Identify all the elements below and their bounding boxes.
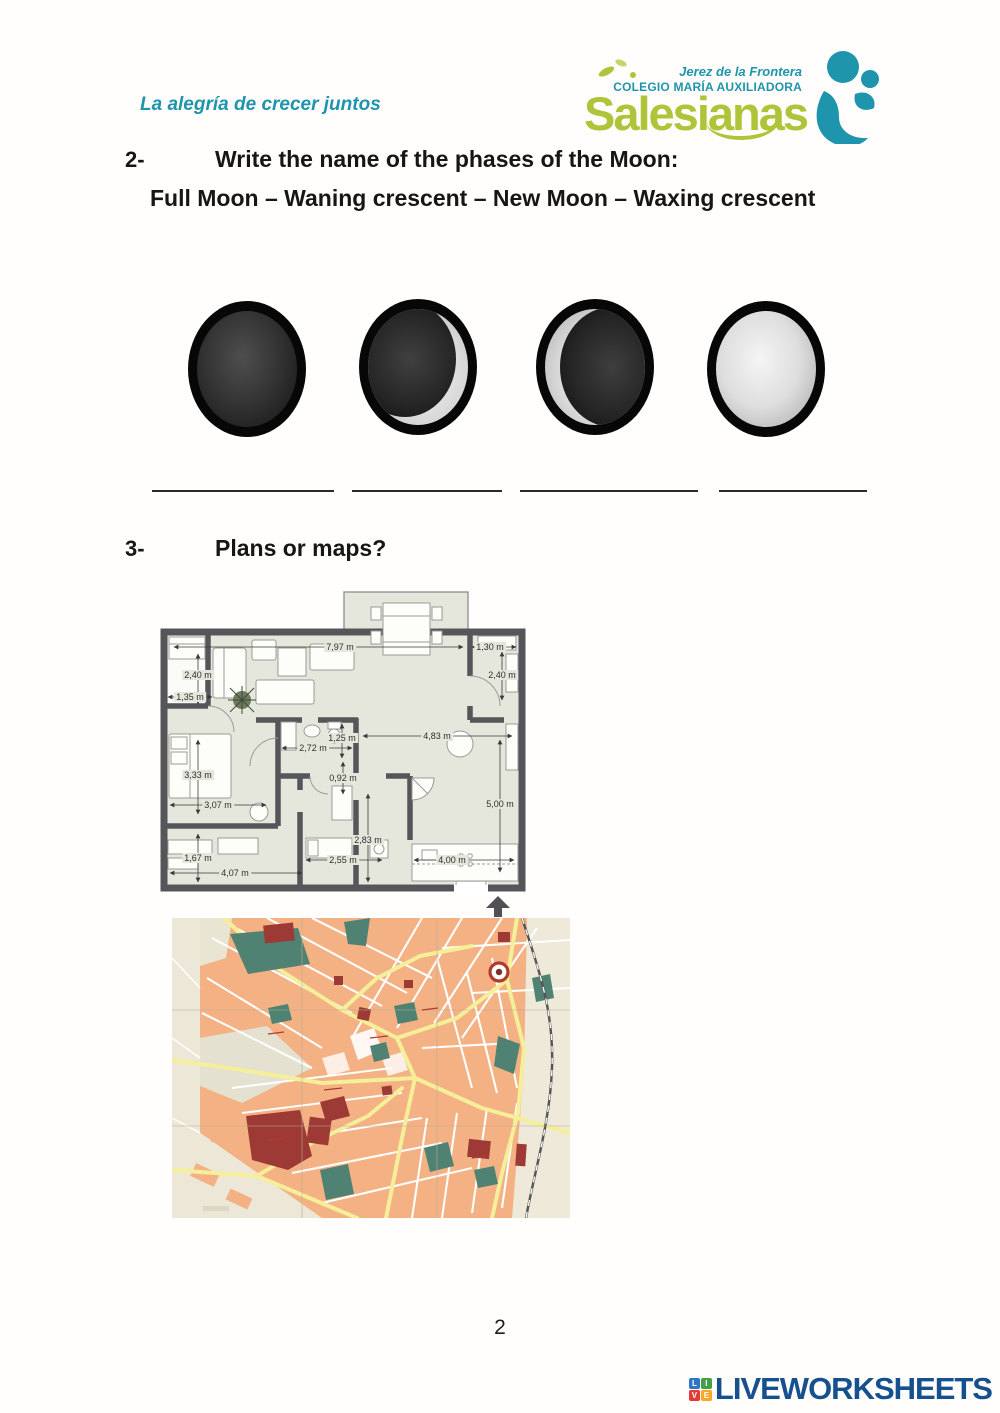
question2-number: 2- [125,147,145,173]
worksheet-page: La alegría de crecer juntos Jerez de la … [0,0,1000,1413]
dimension-label: 1,67 m [182,853,214,863]
dimension-label: 1,25 m [326,733,358,743]
school-tagline: La alegría de crecer juntos [140,94,381,116]
dimension-label: 2,83 m [352,835,384,845]
crescent-lit-left-moon-image [536,299,654,435]
city-map-figure [172,918,570,1218]
logo-tile: I [701,1378,712,1389]
page-number: 2 [0,1316,1000,1340]
dimension-label: 2,55 m [327,855,359,865]
dimension-label: 0,92 m [327,773,359,783]
question3-prompt: Plans or maps? [215,535,386,562]
liveworksheets-logo: L I V E LIVEWORKSHEETS [689,1371,992,1407]
dimension-label: 4,07 m [219,868,251,878]
dimension-label: 2,72 m [297,743,329,753]
question2-word-bank: Full Moon – Waning crescent – New Moon –… [150,185,870,212]
dimension-label: 3,33 m [182,770,214,780]
dimension-label: 2,40 m [182,670,214,680]
arrow-head [486,896,510,908]
dimension-label: 4,83 m [421,731,453,741]
liveworksheets-wordmark: LIVEWORKSHEETS [715,1371,992,1407]
bullring-badge-icon [490,963,508,981]
liveworksheets-grid-icon: L I V E [689,1378,712,1401]
logo-region-text: Jerez de la Frontera [610,64,802,79]
logo-tile: V [689,1390,700,1401]
moon-shadow [560,309,645,425]
leaf-dot-icon [630,72,636,78]
dimension-label: 1,35 m [174,692,206,702]
answer-blank-2[interactable] [352,488,502,492]
moon-surface [716,311,816,427]
new-moon-image [188,301,306,437]
dimension-label: 1,30 m [474,642,506,652]
question2-prompt: Write the name of the phases of the Moon… [215,146,678,173]
dimension-label: 3,07 m [202,800,234,810]
logo-brand-text: Salesianas [584,86,807,141]
moon-surface [545,309,645,425]
dimension-label: 5,00 m [484,799,516,809]
moon-shadow [368,309,456,417]
map-copyright-mark [203,1206,229,1211]
crescent-lit-right-moon-image [359,299,477,435]
up-arrow-icon [486,896,510,918]
arrow-stem [494,908,502,917]
answer-blank-1[interactable] [152,488,334,492]
answer-blank-4[interactable] [719,488,867,492]
floor-plan-figure: 7,97 m 1,30 m 2,40 m 2,40 m 1,35 m 2,72 … [160,588,530,895]
plant [228,686,256,714]
dimension-label: 4,00 m [436,855,468,865]
dimension-label: 2,40 m [486,670,518,680]
dimension-label: 7,97 m [324,642,356,652]
salesianas-figure-icon [812,46,890,149]
full-moon-image [707,301,825,437]
moon-surface [197,311,297,427]
logo-tile: L [689,1378,700,1389]
answer-blank-3[interactable] [520,488,698,492]
question3-number: 3- [125,536,145,562]
logo-tile: E [701,1390,712,1401]
city-map-drawing [172,918,570,1218]
moon-surface [368,309,468,425]
